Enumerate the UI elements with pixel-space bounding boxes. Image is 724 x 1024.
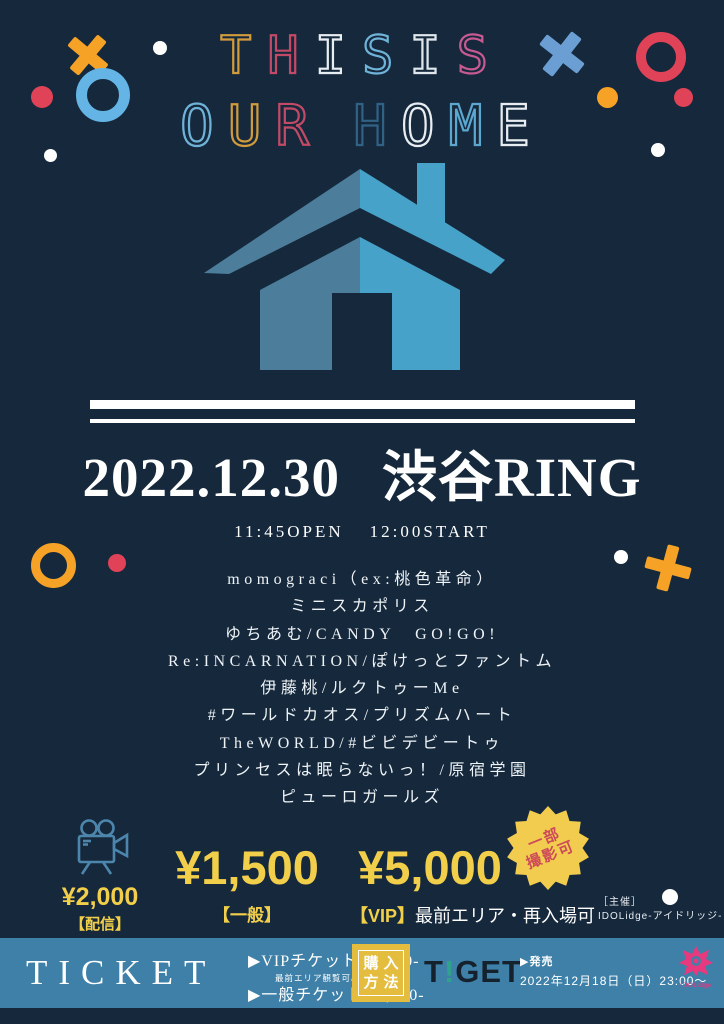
lineup-act: 伊藤桃/ルクトゥーMe bbox=[0, 675, 724, 702]
title-letter: S bbox=[457, 26, 504, 86]
title-letter: S bbox=[362, 26, 409, 86]
idolidge-emblem-icon bbox=[679, 946, 713, 976]
ticket-bar-title: TICKET bbox=[26, 938, 216, 1008]
title-letter: E bbox=[496, 94, 544, 159]
vip-price: ¥5,000 bbox=[350, 840, 510, 895]
event-title-line1: THISIS bbox=[0, 26, 724, 86]
vip-description: 【VIP】最前エリア・再入場可 bbox=[350, 902, 580, 928]
lineup-act: ゆちあむ/CANDY GO!GO! bbox=[0, 621, 724, 648]
general-price-block: ¥1,500 【一般】 bbox=[152, 840, 342, 926]
title-letter: M bbox=[449, 94, 497, 159]
lineup-act: ピューロガールズ bbox=[0, 784, 724, 811]
stream-price-block: ¥2,000 【配信】 アーカイブ2週間 bbox=[38, 818, 162, 953]
lineup-act: ミニスカポリス bbox=[0, 593, 724, 620]
lineup-list: momograci（ex:桃色革命） ミニスカポリス ゆちあむ/CANDY GO… bbox=[0, 566, 724, 812]
house-illustration bbox=[196, 156, 526, 378]
lineup-act: Re:INCARNATION/ぽけっとファントム bbox=[0, 648, 724, 675]
event-date-venue: 2022.12.30渋谷RING bbox=[0, 432, 724, 512]
title-letter: I bbox=[315, 26, 362, 86]
title-letter: O bbox=[180, 94, 228, 159]
event-date: 2022.12.30 bbox=[82, 447, 340, 508]
title-letter bbox=[323, 94, 353, 159]
organizer-credit: ［主催］ IDOLidge-アイドリッジ- bbox=[598, 896, 722, 924]
lineup-act: プリンセスは眠らないっ！/原宿学園 bbox=[0, 757, 724, 784]
title-letter: I bbox=[409, 26, 456, 86]
title-letter: T bbox=[220, 26, 267, 86]
photo-allowed-badge: 一部 撮影可 bbox=[506, 806, 590, 890]
title-letter: H bbox=[353, 94, 401, 159]
vip-desc-text: 最前エリア・再入場可 bbox=[415, 906, 595, 926]
event-times: 11:45OPEN12:00START bbox=[0, 522, 724, 542]
purchase-method-box: 購入 方法 bbox=[352, 944, 410, 1002]
lineup-act: TheWORLD/#ビビデビートゥ bbox=[0, 730, 724, 757]
divider-thin bbox=[90, 419, 635, 423]
title-letter: R bbox=[275, 94, 323, 159]
stream-label: 【配信】 bbox=[38, 913, 162, 934]
title-letter: U bbox=[228, 94, 276, 159]
stream-price: ¥2,000 bbox=[38, 883, 162, 912]
organizer-name: IDOLidge-アイドリッジ- bbox=[598, 910, 722, 924]
general-price: ¥1,500 bbox=[152, 840, 342, 895]
divider-thick bbox=[90, 400, 635, 409]
tiget-logo: T!GET bbox=[424, 954, 522, 990]
idolidge-logo: IDOLidge bbox=[674, 946, 718, 989]
video-camera-icon bbox=[67, 818, 133, 876]
organizer-label: ［主催］ bbox=[598, 896, 722, 910]
dot-decoration bbox=[614, 550, 628, 564]
lineup-act: momograci（ex:桃色革命） bbox=[0, 566, 724, 593]
start-time: 12:00START bbox=[370, 522, 490, 541]
event-venue: 渋谷RING bbox=[382, 447, 642, 508]
vip-tag: 【VIP】 bbox=[350, 906, 415, 926]
open-time: 11:45OPEN bbox=[234, 522, 344, 541]
event-poster: THISIS OUR HOME 2022.12.30渋谷RING 11:45OP… bbox=[0, 0, 724, 1024]
event-title-line2: OUR HOME bbox=[0, 94, 724, 159]
general-label: 【一般】 bbox=[152, 901, 342, 926]
tiget-logo-accent: ! bbox=[444, 954, 455, 989]
lineup-act: #ワールドカオス/プリズムハート bbox=[0, 702, 724, 729]
title-letter: O bbox=[401, 94, 449, 159]
title-letter: H bbox=[267, 26, 314, 86]
ticket-bar: TICKET ▶VIPチケット ¥5,000- 最前エリア観覧可/再入場可 ▶一… bbox=[0, 938, 724, 1008]
idolidge-label: IDOLidge bbox=[674, 982, 718, 989]
